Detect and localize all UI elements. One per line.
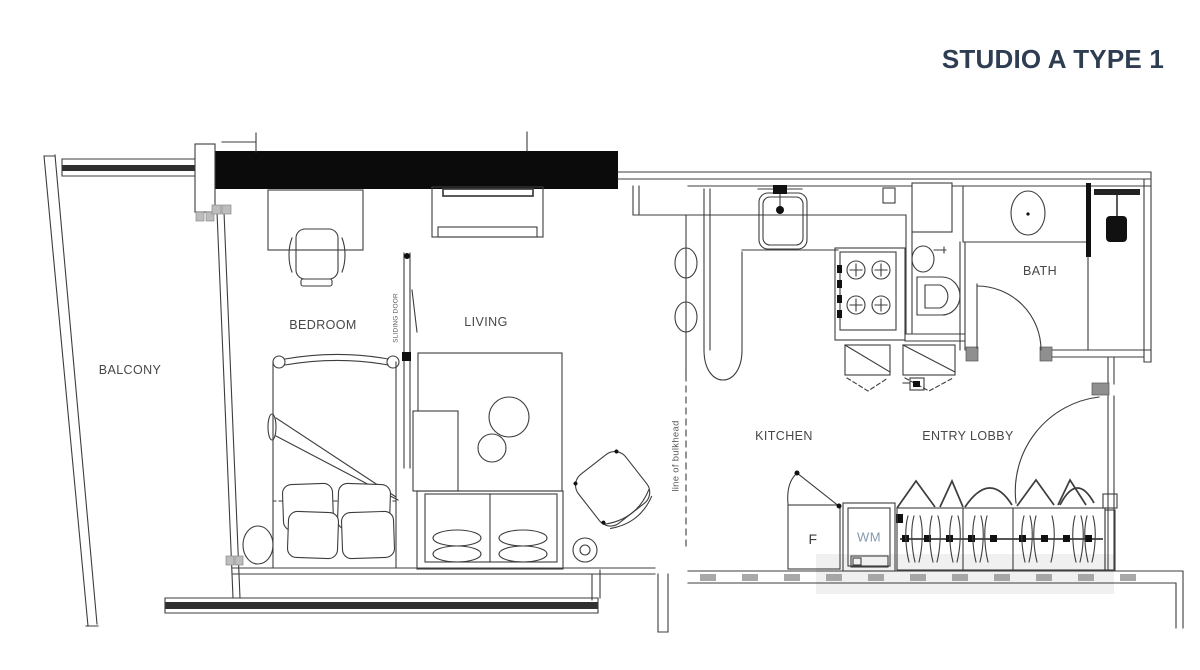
bathroom (883, 183, 1140, 390)
shower-rail (1094, 189, 1140, 195)
duct-shaft (912, 183, 952, 232)
vanity (963, 186, 1088, 242)
line-of-bulkhead-label: line of bulkhead (671, 420, 682, 491)
wall-column (195, 144, 215, 212)
bed (268, 355, 399, 569)
plan-title: STUDIO A TYPE 1 (942, 44, 1164, 75)
entry-door-jamb (1092, 383, 1109, 395)
entry-lobby (788, 397, 1117, 571)
bath-door (966, 284, 1052, 361)
floorplan-page: STUDIO A TYPE 1 BALCONY BEDROOM LIVING K… (0, 0, 1200, 670)
counter-edge (633, 186, 905, 215)
desk-chair (289, 229, 345, 286)
fridge-label: F (809, 531, 818, 547)
bedroom (243, 190, 417, 568)
room-label-living: LIVING (464, 315, 507, 329)
sofa (417, 491, 563, 569)
wardrobe-door-peaks (897, 480, 1094, 508)
room-label-balcony: BALCONY (99, 363, 162, 377)
balcony-bottom-rail (165, 602, 598, 609)
sliding-door-label: SLIDING DOOR (393, 293, 400, 343)
pillow (341, 511, 395, 559)
balcony-slanted-wall (44, 155, 98, 626)
coffee-table-rug (413, 353, 562, 491)
desk (268, 190, 363, 250)
shower-head (1106, 216, 1127, 242)
floorplan-drawing (0, 0, 1200, 670)
duct (883, 188, 895, 203)
shower (1086, 183, 1140, 350)
island-counter (704, 189, 838, 380)
armchair (570, 446, 659, 537)
floor-trap (903, 378, 924, 390)
pillow (287, 511, 339, 559)
entry-door-swing (1015, 397, 1099, 503)
room-label-bath: BATH (1023, 264, 1057, 278)
washing-machine-label: WM (857, 530, 881, 545)
bedside-stool (243, 526, 273, 564)
cooktop-hob (835, 248, 905, 340)
living (413, 187, 659, 569)
room-label-kitchen: KITCHEN (755, 429, 813, 443)
kitchen-sink (758, 185, 807, 249)
base-cabinets (845, 345, 955, 391)
room-label-entry-lobby: ENTRY LOBBY (922, 429, 1013, 443)
tv-console (432, 187, 543, 237)
side-table (573, 538, 597, 562)
toilet (912, 246, 960, 315)
room-label-bedroom: BEDROOM (289, 318, 356, 332)
balcony-top-rail (62, 165, 208, 171)
hanger-hooks (902, 535, 1092, 542)
black-wall (213, 151, 618, 189)
balcony-window-wall (217, 212, 240, 598)
